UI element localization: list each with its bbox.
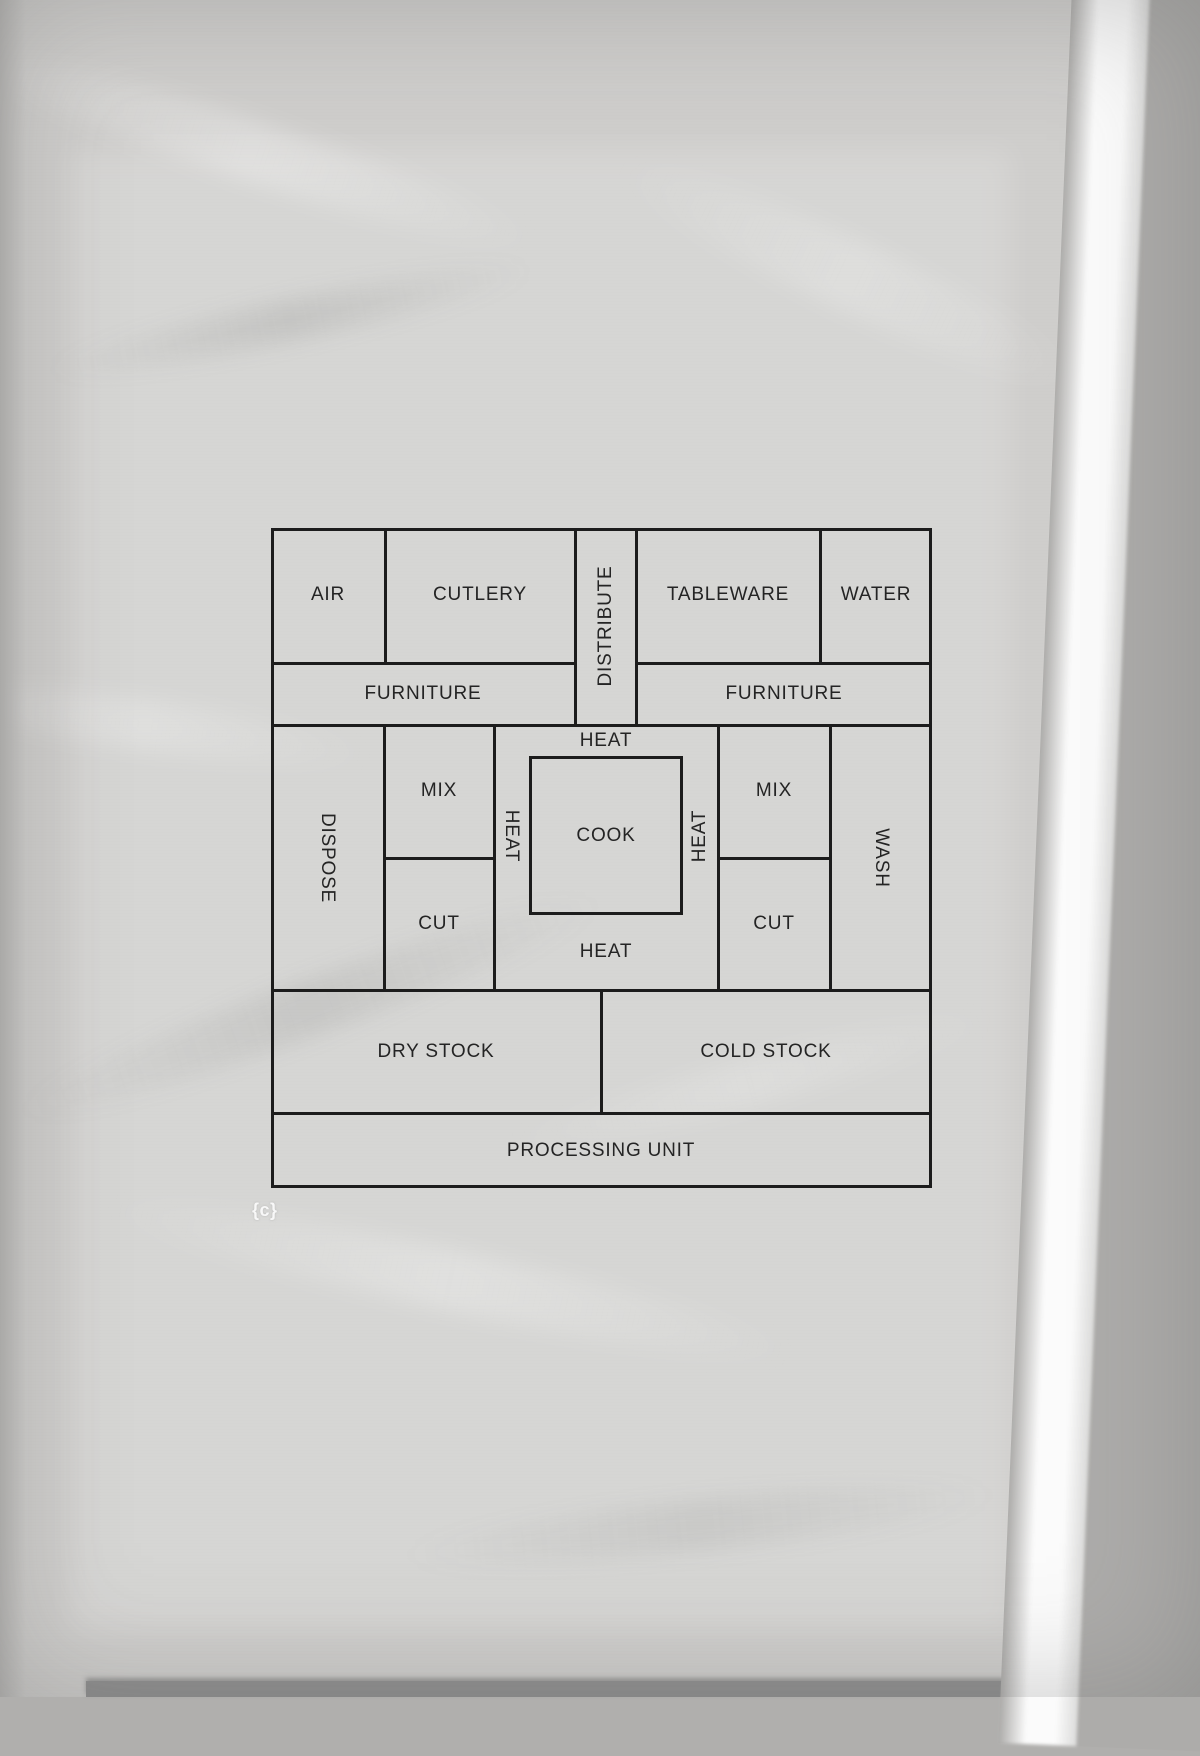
wall-line	[717, 857, 831, 860]
wall-line	[829, 724, 832, 990]
room-label-heat-left: HEAT	[500, 810, 522, 862]
room-label-dispose: DISPOSE	[316, 813, 338, 903]
wall-line	[493, 724, 496, 990]
room-label-cook: COOK	[576, 825, 635, 847]
room-label-heat-bottom: HEAT	[580, 941, 632, 963]
kitchen-layout-diagram: AIR CUTLERY DISTRIBUTE TABLEWARE WATER F…	[271, 528, 932, 1188]
room-label-cold-stock: COLD STOCK	[700, 1041, 831, 1063]
room-label-furniture-left: FURNITURE	[365, 683, 482, 705]
wall-line	[271, 662, 576, 665]
scanned-page: AIR CUTLERY DISTRIBUTE TABLEWARE WATER F…	[0, 0, 1200, 1697]
room-label-mix-left: MIX	[421, 780, 457, 802]
room-label-wash: WASH	[870, 828, 892, 888]
wall-line	[819, 528, 822, 663]
wall-line	[635, 528, 638, 725]
wall-line	[271, 724, 932, 727]
room-label-cut-right: CUT	[753, 913, 794, 935]
room-label-cutlery: CUTLERY	[433, 584, 527, 606]
room-label-water: WATER	[841, 584, 912, 606]
wall-line	[384, 528, 387, 663]
wall-line	[636, 662, 932, 665]
room-label-mix-right: MIX	[756, 780, 792, 802]
room-label-tableware: TABLEWARE	[667, 584, 789, 606]
room-label-distribute: DISTRIBUTE	[595, 566, 617, 687]
wall-line	[717, 724, 720, 990]
room-label-heat-right: HEAT	[689, 810, 711, 862]
wall-line	[574, 528, 577, 725]
figure-caption: {c}	[252, 1200, 278, 1221]
room-label-air: AIR	[311, 584, 345, 606]
room-label-dry-stock: DRY STOCK	[377, 1041, 494, 1063]
room-label-cut-left: CUT	[418, 913, 459, 935]
room-label-processing-unit: PROCESSING UNIT	[507, 1140, 695, 1162]
wall-line	[600, 989, 603, 1113]
wall-line	[383, 724, 386, 990]
room-label-furniture-right: FURNITURE	[726, 683, 843, 705]
room-label-heat-top: HEAT	[580, 730, 632, 752]
wall-line	[383, 857, 495, 860]
